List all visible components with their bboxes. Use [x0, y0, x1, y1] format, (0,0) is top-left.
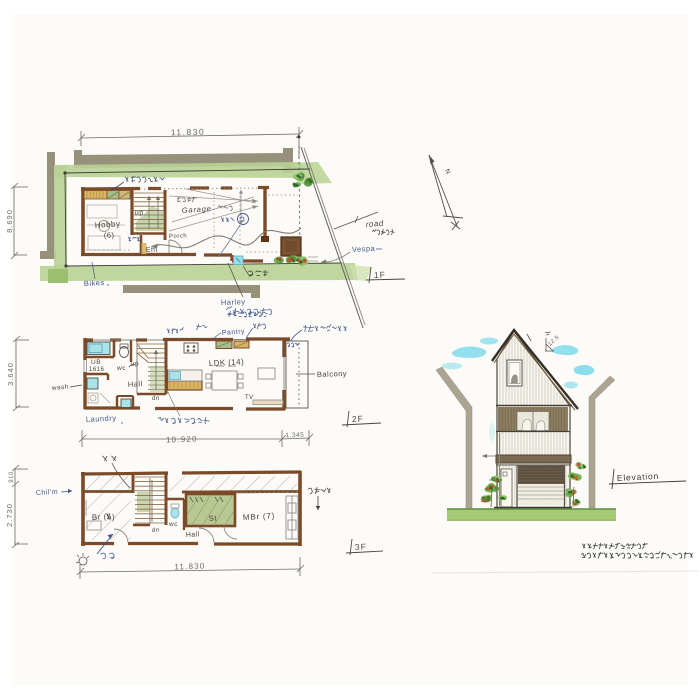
svg-text:Hobby: Hobby [95, 219, 121, 230]
svg-text:MBr (7): MBr (7) [243, 511, 276, 522]
svg-text:Porch: Porch [169, 233, 187, 240]
svg-text:up: up [131, 360, 140, 368]
svg-text:(6): (6) [104, 230, 115, 240]
svg-text:Bikes: Bikes [84, 278, 105, 288]
svg-text:dn: dn [152, 527, 160, 534]
svg-text:Balcony: Balcony [317, 369, 347, 379]
svg-text:3F: 3F [355, 542, 367, 552]
svg-text:St: St [209, 513, 218, 523]
svg-text:1F: 1F [374, 270, 386, 280]
svg-text:Harley: Harley [221, 297, 246, 307]
svg-text:LDK (14): LDK (14) [209, 357, 245, 368]
svg-text:road: road [366, 219, 385, 229]
svg-text:910: 910 [9, 471, 15, 483]
svg-text:2.730: 2.730 [5, 503, 14, 527]
svg-text:dn: dn [152, 396, 160, 402]
svg-text:1616: 1616 [89, 367, 105, 373]
svg-text:11.830: 11.830 [174, 561, 205, 571]
svg-text:TV: TV [245, 395, 254, 401]
svg-text:2F: 2F [352, 414, 364, 424]
svg-text:UB: UB [91, 359, 101, 366]
svg-text:Vespa: Vespa [352, 244, 376, 254]
svg-text:wc: wc [168, 521, 178, 528]
svg-text:Chil'm: Chil'm [36, 489, 59, 497]
svg-text:wc: wc [116, 365, 126, 372]
svg-text:1.345: 1.345 [285, 432, 304, 440]
svg-text:Hall: Hall [186, 531, 200, 539]
svg-text:up: up [135, 209, 144, 217]
svg-text:3.640: 3.640 [6, 362, 15, 386]
svg-text:): ) [112, 513, 115, 522]
svg-text:Laundry: Laundry [86, 413, 117, 424]
svg-text:Hall: Hall [128, 379, 144, 389]
svg-text:8.690: 8.690 [5, 209, 14, 233]
svg-text:11.830: 11.830 [171, 127, 206, 138]
svg-text:10.920: 10.920 [166, 434, 198, 444]
